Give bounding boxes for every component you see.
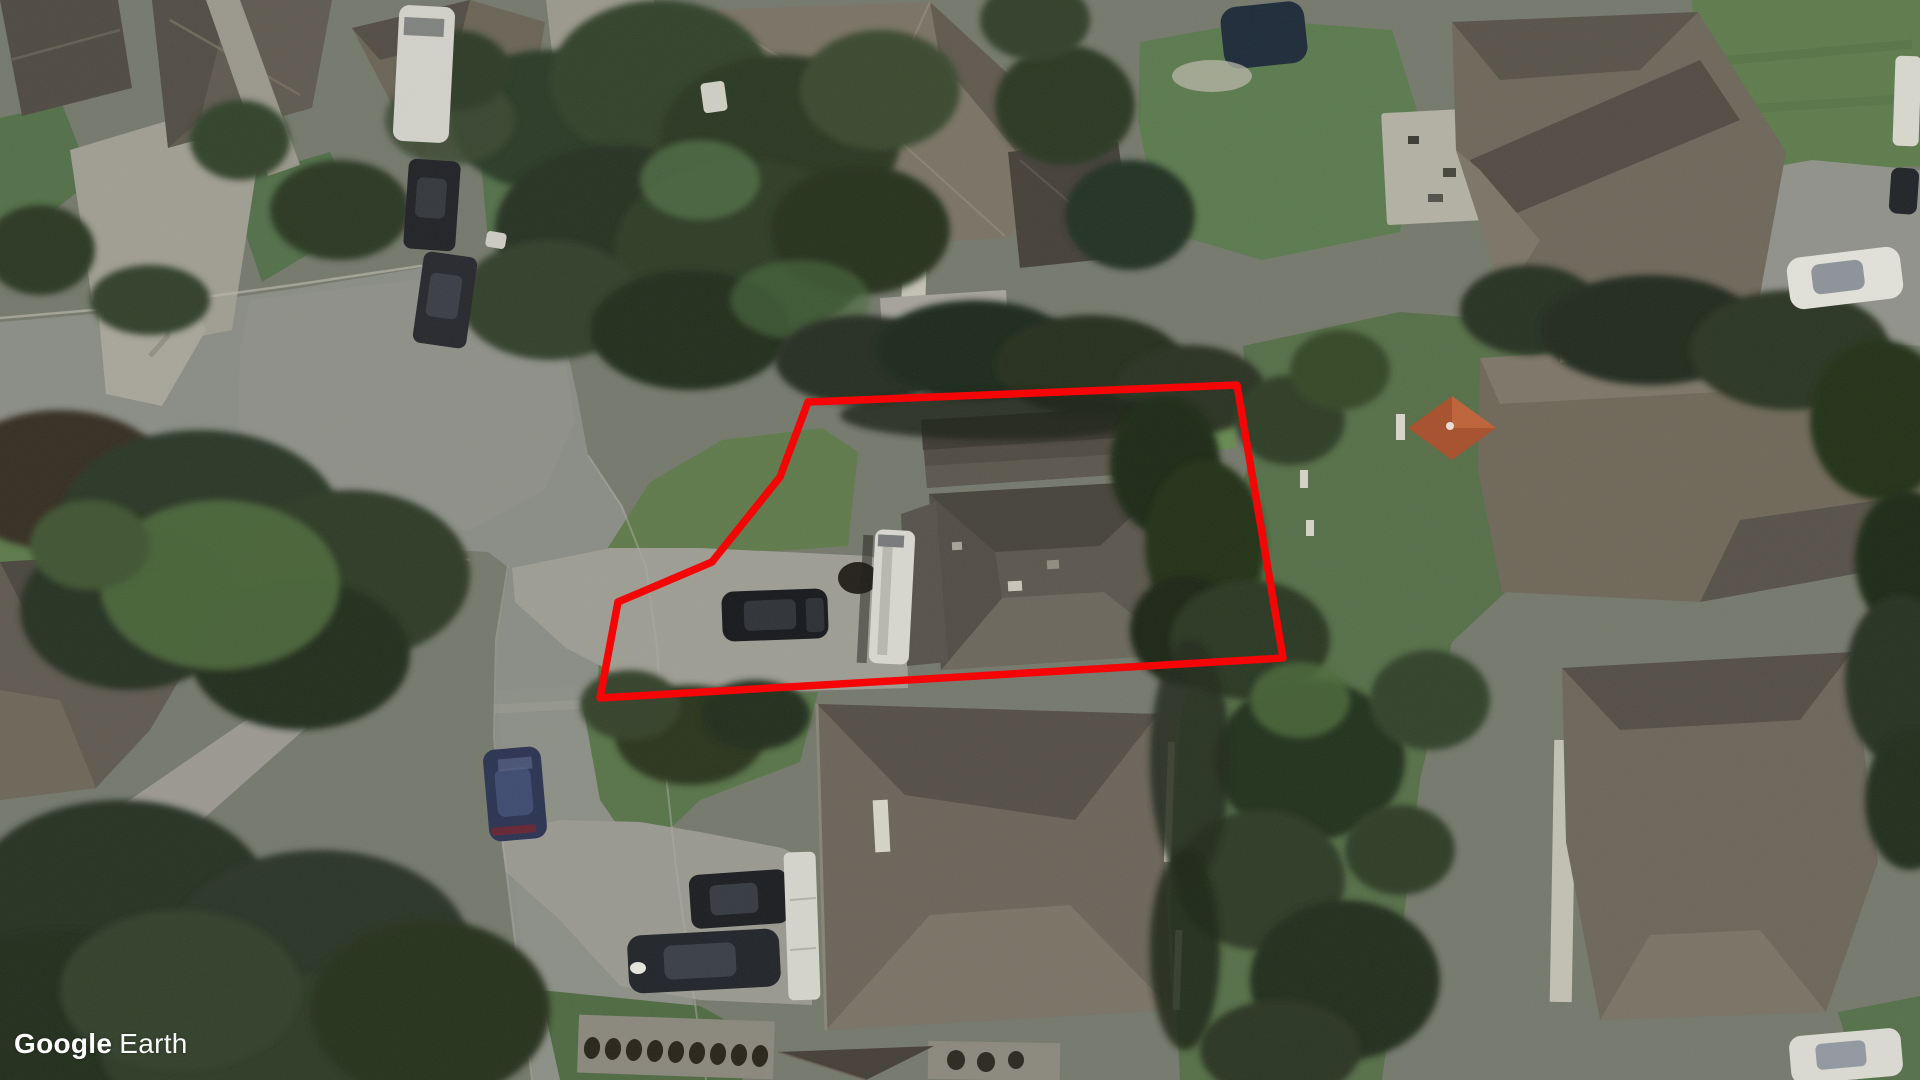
- google-earth-watermark: GoogleEarth: [14, 1028, 188, 1060]
- watermark-brand: Google: [14, 1028, 112, 1059]
- image-grain: [0, 0, 1920, 1080]
- satellite-imagery[interactable]: [0, 0, 1920, 1080]
- watermark-product: Earth: [119, 1028, 187, 1059]
- google-earth-viewport[interactable]: GoogleEarth: [0, 0, 1920, 1080]
